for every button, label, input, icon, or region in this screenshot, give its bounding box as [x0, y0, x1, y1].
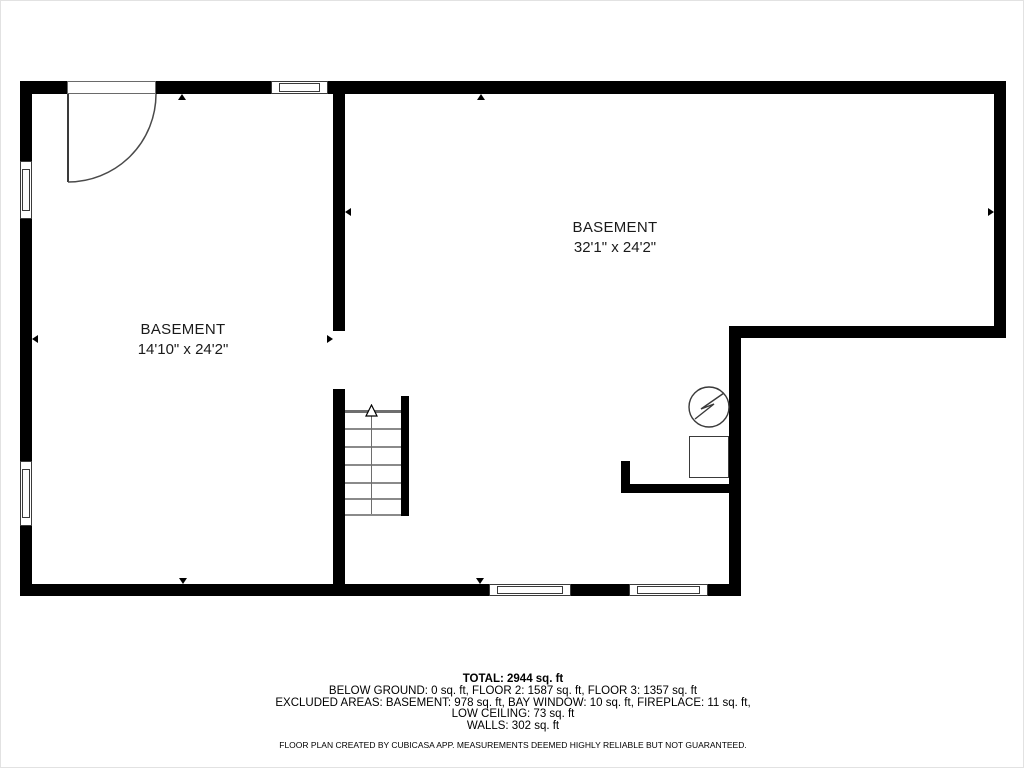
dimension-arrow-icon	[178, 94, 186, 100]
dimension-arrow-icon	[988, 208, 994, 216]
disclaimer-text: FLOOR PLAN CREATED BY CUBICASA APP. MEAS…	[1, 740, 1024, 750]
window-pane	[22, 169, 30, 211]
wall-stair-right	[401, 396, 409, 516]
room-label-right: BASEMENT 32'1" x 24'2"	[525, 219, 705, 256]
water-heater-bolt-icon	[687, 385, 732, 430]
room-dimensions: 32'1" x 24'2"	[525, 239, 705, 256]
window-icon	[271, 81, 328, 94]
wall-divider-lower	[333, 389, 345, 584]
wall-right-upper	[994, 81, 1006, 338]
floor-plan-canvas: BASEMENT 14'10" x 24'2" BASEMENT 32'1" x…	[0, 0, 1024, 768]
room-label-left: BASEMENT 14'10" x 24'2"	[93, 321, 273, 358]
wall-notch-horizontal	[729, 326, 1006, 338]
dimension-arrow-icon	[179, 578, 187, 584]
summary-walls: WALLS: 302 sq. ft	[1, 721, 1024, 733]
wall-utility-horizontal	[621, 484, 731, 493]
area-summary: TOTAL: 2944 sq. ft BELOW GROUND: 0 sq. f…	[1, 674, 1024, 750]
summary-floors: BELOW GROUND: 0 sq. ft, FLOOR 2: 1587 sq…	[1, 686, 1024, 698]
dimension-arrow-icon	[476, 578, 484, 584]
window-icon	[20, 161, 32, 219]
utility-fixture-box	[689, 436, 729, 478]
stair-tread	[345, 428, 401, 430]
stair-tread	[345, 482, 401, 484]
wall-divider-upper	[333, 94, 345, 331]
stair-tread	[345, 498, 401, 500]
window-pane	[22, 469, 30, 518]
dimension-arrow-icon	[327, 335, 333, 343]
window-pane	[637, 586, 700, 594]
door-swing-icon	[61, 87, 163, 189]
room-name: BASEMENT	[525, 219, 705, 236]
dimension-arrow-icon	[32, 335, 38, 343]
stair-tread	[345, 514, 401, 516]
wall-right-lower	[729, 326, 741, 596]
window-icon	[629, 584, 708, 596]
stair-tread	[345, 446, 401, 448]
dimension-arrow-icon	[477, 94, 485, 100]
stair-walk-line	[371, 414, 372, 514]
room-name: BASEMENT	[93, 321, 273, 338]
wall-utility-stub	[621, 461, 630, 493]
room-dimensions: 14'10" x 24'2"	[93, 341, 273, 358]
stair-tread	[345, 464, 401, 466]
wall-top	[20, 81, 1006, 94]
window-pane	[279, 83, 320, 92]
window-icon	[489, 584, 571, 596]
window-pane	[497, 586, 563, 594]
window-icon	[20, 461, 32, 526]
dimension-arrow-icon	[345, 208, 351, 216]
staircase-up-arrow-icon	[364, 404, 379, 418]
